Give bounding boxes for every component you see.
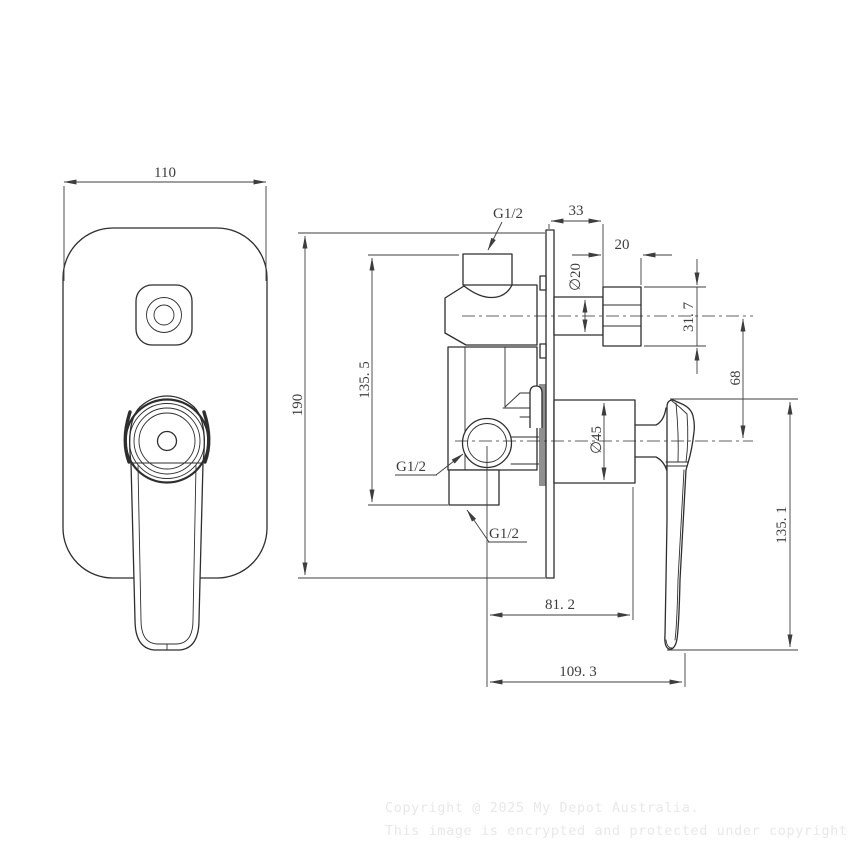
dim-135-5-label: 135. 5 (357, 361, 373, 399)
dim-109-3-label: 109. 3 (559, 664, 597, 680)
thread-inlet-label: G1/2 (396, 459, 426, 475)
valve-body-upper (445, 285, 537, 345)
dim-dia20-label: ∅20 (568, 263, 584, 291)
technical-drawing-canvas: 110 190 135. 5 33 20 ∅20 31. 7 68 ∅45 81… (0, 0, 850, 850)
handle-lever-side (665, 400, 695, 649)
handle-stem-bottom (635, 457, 667, 471)
spout-hex-block (603, 287, 641, 346)
dim-31-7-label: 31. 7 (681, 302, 697, 333)
dim-135-1-label: 135. 1 (774, 506, 790, 544)
dim-81-2-label: 81. 2 (545, 597, 575, 613)
handle-stem-top (635, 408, 666, 425)
copyright-line-2: This image is encrypted and protected un… (385, 823, 850, 839)
diverter-button (136, 285, 192, 345)
dim-20-label: 20 (615, 237, 630, 253)
dim-110-label: 110 (154, 165, 176, 181)
dim-33-label: 33 (569, 203, 584, 219)
thread-bottom-label: G1/2 (489, 526, 519, 542)
dim-68-label: 68 (728, 371, 744, 386)
valve-body-bottom-port (449, 470, 499, 505)
leader-thread-top (488, 222, 502, 250)
inlet-port-top (463, 254, 512, 285)
copyright-line-1: Copyright @ 2025 My Depot Australia. (385, 800, 699, 816)
front-view (63, 228, 267, 650)
leader-thread-bottom (467, 510, 489, 542)
thread-top-label: G1/2 (493, 206, 523, 222)
dim-190-label: 190 (290, 394, 306, 417)
wall-plate-side (546, 230, 554, 578)
dim-dia45-label: ∅45 (589, 426, 605, 454)
cartridge-retainer-tab (530, 386, 542, 428)
plate-tab-upper (540, 276, 546, 290)
plate-tab-lower (540, 344, 546, 358)
watermark: Copyright @ 2025 My Depot Australia. Thi… (385, 800, 850, 839)
